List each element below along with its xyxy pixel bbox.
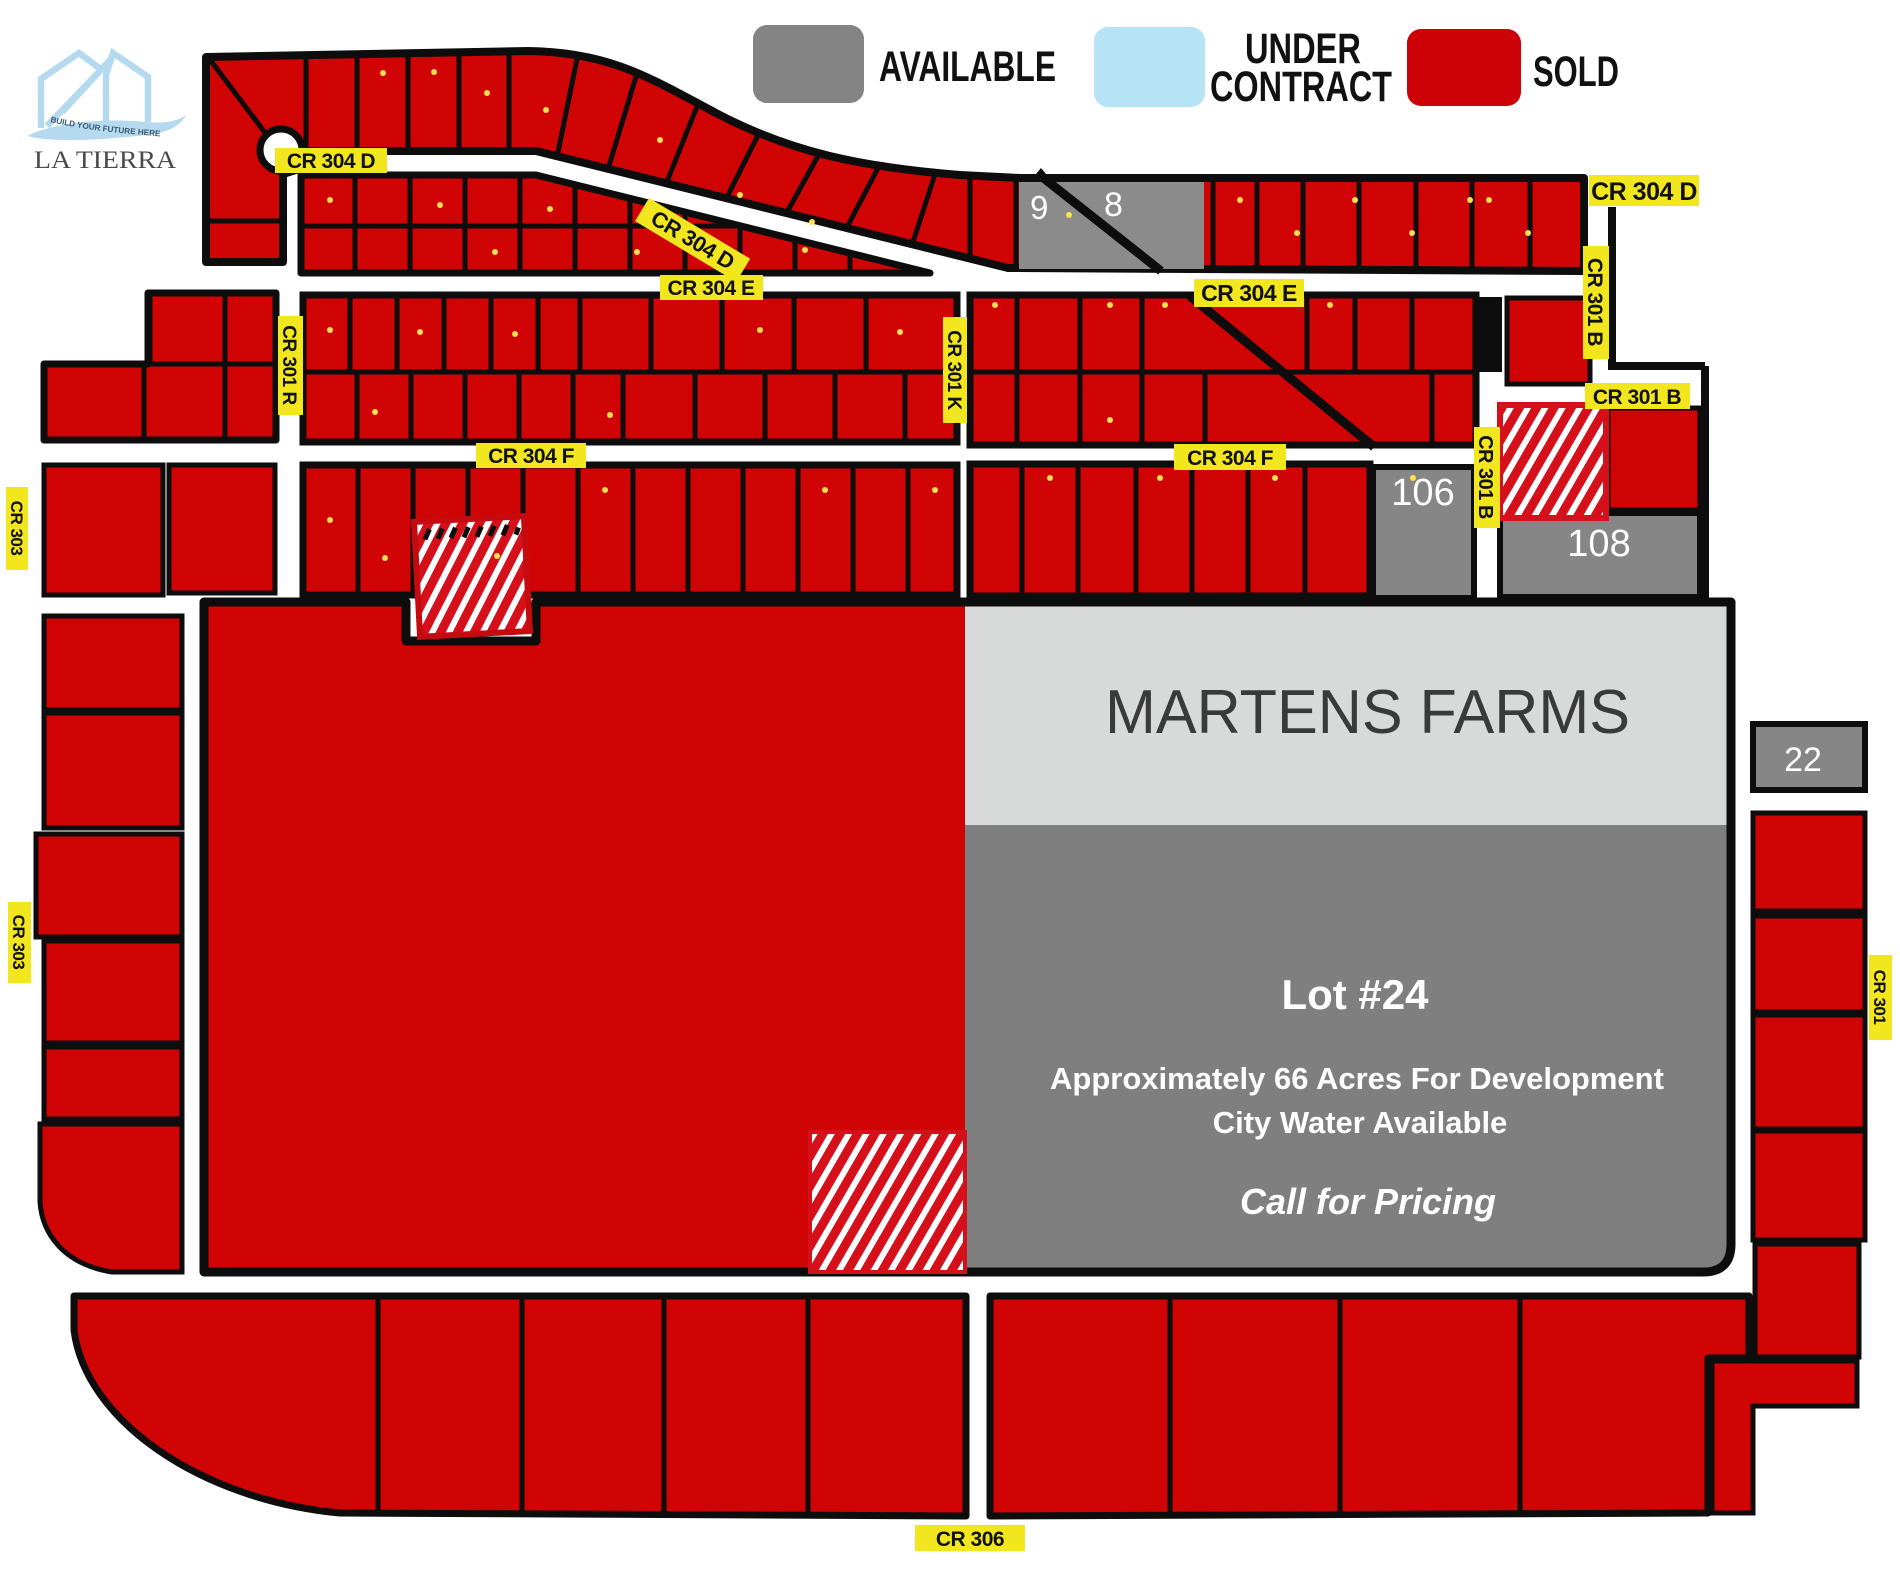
svg-text:CR 303: CR 303	[9, 915, 28, 970]
svg-text:CR 303: CR 303	[7, 501, 26, 556]
svg-text:CR 304 E: CR 304 E	[1201, 280, 1297, 306]
svg-text:CR 306: CR 306	[936, 1528, 1004, 1551]
svg-text:106: 106	[1391, 472, 1454, 514]
svg-text:CR 304 E: CR 304 E	[667, 277, 755, 300]
svg-text:CR 301 K: CR 301 K	[943, 330, 964, 410]
svg-text:Call for Pricing: Call for Pricing	[1240, 1181, 1496, 1222]
svg-text:AVAILABLE: AVAILABLE	[879, 43, 1056, 91]
svg-text:8: 8	[1104, 186, 1123, 224]
svg-text:CR 301 R: CR 301 R	[278, 325, 299, 405]
svg-text:22: 22	[1784, 741, 1822, 779]
svg-text:CR 301 B: CR 301 B	[1583, 258, 1606, 347]
svg-text:CR 301 B: CR 301 B	[1593, 386, 1682, 409]
svg-text:CR 304 D: CR 304 D	[1591, 178, 1697, 206]
svg-text:Lot #24: Lot #24	[1281, 971, 1429, 1018]
svg-text:City Water Available: City Water Available	[1213, 1105, 1508, 1140]
svg-text:108: 108	[1567, 523, 1630, 565]
svg-text:MARTENS FARMS: MARTENS FARMS	[1105, 678, 1630, 747]
svg-text:CR 301 B: CR 301 B	[1474, 435, 1496, 519]
svg-text:CR 304 F: CR 304 F	[1187, 447, 1274, 470]
svg-text:CONTRACT: CONTRACT	[1210, 63, 1392, 111]
svg-text:CR 301: CR 301	[1870, 970, 1889, 1025]
svg-text:9: 9	[1030, 189, 1048, 226]
svg-text:LA TIERRA: LA TIERRA	[34, 147, 176, 174]
svg-text:CR 304 D: CR 304 D	[287, 150, 376, 173]
svg-text:Approximately 66 Acres For Dev: Approximately 66 Acres For Development	[1050, 1061, 1664, 1096]
svg-text:CR 304 F: CR 304 F	[488, 445, 575, 468]
svg-text:SOLD: SOLD	[1533, 48, 1619, 96]
